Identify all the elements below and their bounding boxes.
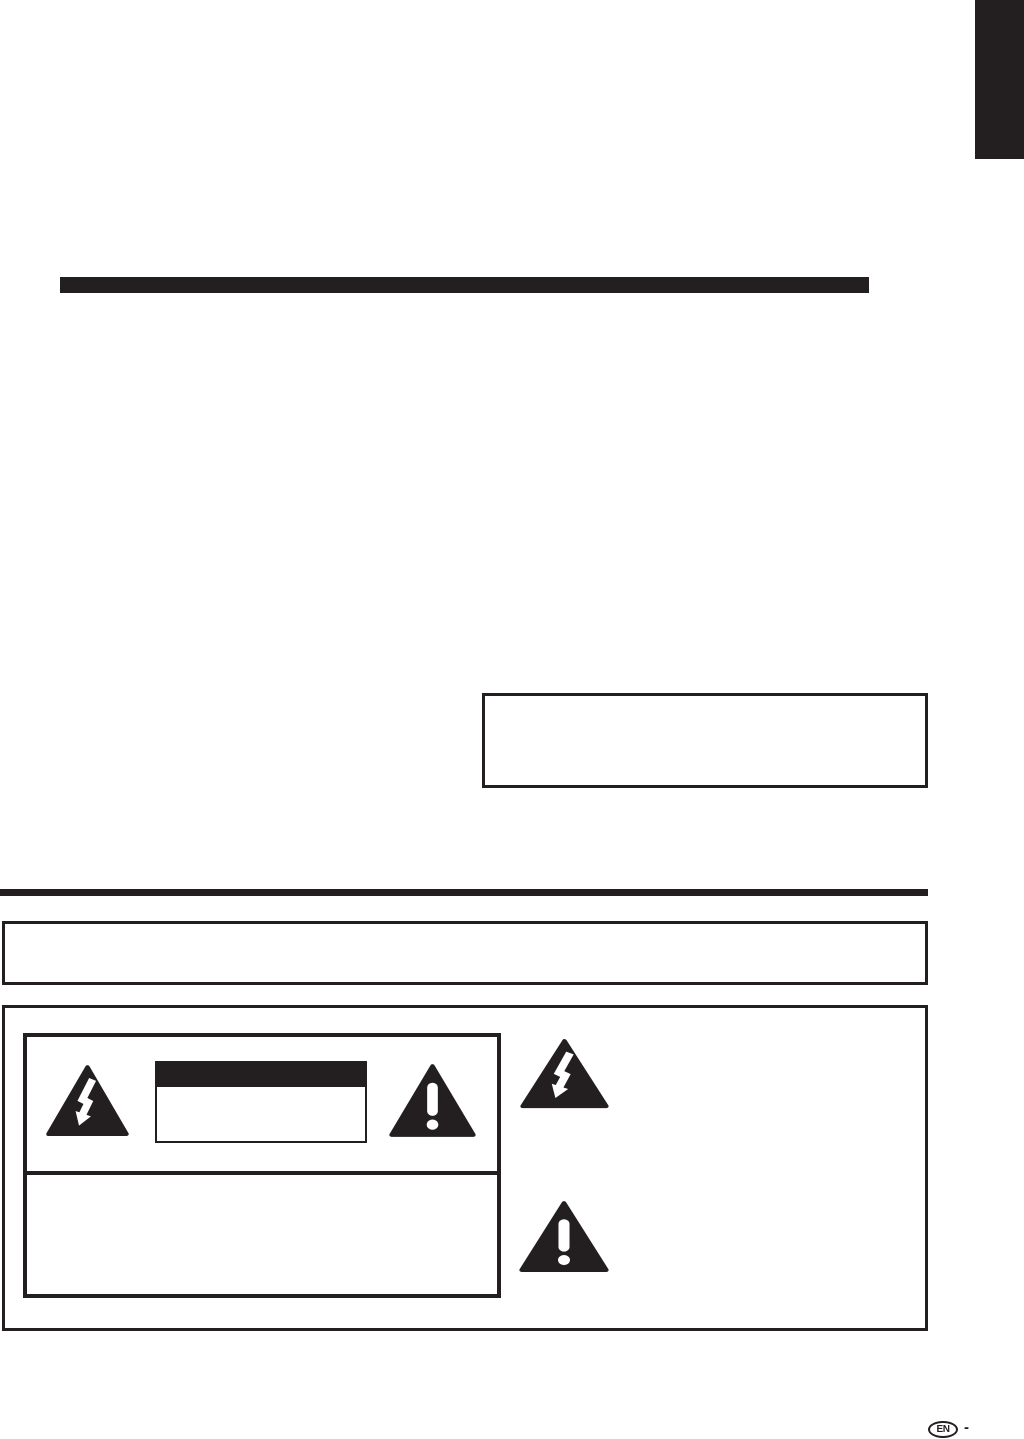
high-voltage-triangle-icon [519, 1038, 610, 1113]
caution-text-box [155, 1085, 367, 1143]
section-rule [0, 889, 928, 896]
language-badge-label: EN [937, 1425, 950, 1435]
high-voltage-triangle-icon [45, 1064, 130, 1141]
footer-page-separator: - [964, 1419, 969, 1436]
caution-title-bar [155, 1061, 367, 1085]
note-box-regulatory [482, 693, 928, 788]
note-box-wide [2, 921, 928, 985]
warning-label-divider [23, 1171, 501, 1175]
heading-rule [60, 277, 869, 293]
caution-triangle-icon [388, 1063, 477, 1142]
caution-triangle-icon [518, 1200, 610, 1277]
manual-page: EN - [0, 0, 1024, 1439]
language-badge: EN [928, 1421, 958, 1438]
page-corner-tab [975, 0, 1024, 159]
